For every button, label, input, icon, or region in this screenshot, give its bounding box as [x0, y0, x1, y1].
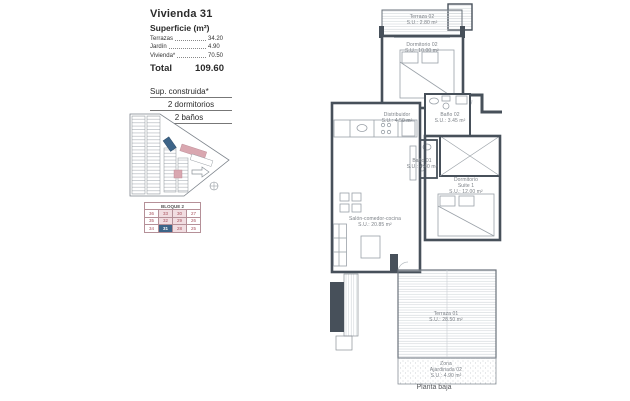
site-plan-drawing: [126, 112, 234, 200]
zona-ajardinada-label: Zona Ajardinada 02 S.U.: 4.90 m²: [416, 361, 476, 379]
terraza-01-label: Terraza 01 S.U.: 28.50 m²: [416, 311, 476, 323]
salon-label: Salón-comedor-cocina S.U.: 20.85 m²: [340, 216, 410, 228]
bano-02-label: Baño 02 S.U.: 3.45 m²: [428, 112, 472, 124]
dotted-leader: [169, 48, 206, 49]
unit-cell: 25: [187, 225, 201, 233]
floor-plan-drawing: [322, 0, 520, 401]
unit-cell: 36: [145, 210, 159, 218]
salon-room: [332, 103, 420, 272]
bedrooms-count: 2 dormitorios: [150, 100, 232, 111]
surface-value: 4.90: [208, 44, 226, 50]
suite-label: Dormitorio Suite 1 S.U.: 12.00 m²: [440, 177, 492, 195]
unit-cell: 28: [173, 225, 187, 233]
utility-block: [330, 282, 344, 332]
surface-label: Jardín: [150, 44, 167, 50]
surface-row-terrazas: Terrazas 34.20: [150, 36, 226, 42]
built-line: Sup. construida*: [150, 87, 232, 98]
dotted-leader: [175, 40, 206, 41]
surface-label: Terrazas: [150, 36, 173, 42]
unit-strip: [132, 116, 145, 194]
table-row: 36 33 30 27: [145, 210, 201, 218]
site-plan: [126, 112, 234, 200]
unit-strip: [147, 116, 160, 194]
unit-cell: 35: [145, 217, 159, 225]
unit-cell: 32: [159, 217, 173, 225]
dormitorio-02-label: Dormitorio 02 S.U.: 10.00 m²: [390, 42, 454, 54]
surface-row-vivienda: Vivienda* 70.50: [150, 53, 226, 59]
utility-box: [336, 336, 352, 350]
unit-cell: 26: [187, 217, 201, 225]
terraza-02-label: Terraza 02 S.U.: 2.80 m²: [390, 14, 454, 26]
dotted-leader: [177, 57, 206, 58]
surface-info-block: Vivienda 31 Superficie (m²) Terrazas 34.…: [150, 8, 234, 124]
wall: [390, 254, 398, 272]
unit-cell: 33: [159, 210, 173, 218]
surface-subtitle: Superficie (m²): [150, 23, 234, 33]
total-label: Total: [150, 63, 172, 74]
surface-value: 34.20: [208, 36, 226, 42]
floor-plan: Terraza 02 S.U.: 2.80 m² Dormitorio 02 S…: [322, 0, 520, 401]
dwelling-title: Vivienda 31: [150, 8, 234, 20]
surface-label: Vivienda*: [150, 53, 175, 59]
side-planter: [344, 274, 358, 336]
unit-cell: 27: [187, 210, 201, 218]
total-row: Total 109.60: [150, 63, 224, 74]
unit-cell: 30: [173, 210, 187, 218]
unit-cell: 29: [173, 217, 187, 225]
block-table: BLOQUE 2 36 33 30 27 35 32 29 26 34 31 2…: [144, 202, 201, 233]
bed-suite: [438, 194, 494, 236]
table-row: 35 32 29 26: [145, 217, 201, 225]
plan-caption: Planta baja: [384, 384, 484, 391]
bano-01-label: Baño 01 S.U.: 4.40 m²: [402, 158, 442, 170]
total-value: 109.60: [195, 63, 224, 74]
block-table-title: BLOQUE 2: [145, 203, 201, 210]
unit-cell: 34: [145, 225, 159, 233]
distribuidor-label: Distribuidor S.U.: 4.50 m²: [374, 112, 420, 124]
selected-unit-cell: 31: [159, 225, 173, 233]
surface-row-jardin: Jardín 4.90: [150, 44, 226, 50]
highlighted-block: [174, 170, 182, 178]
surface-value: 70.50: [208, 53, 226, 59]
table-row: 34 31 28 25: [145, 225, 201, 233]
